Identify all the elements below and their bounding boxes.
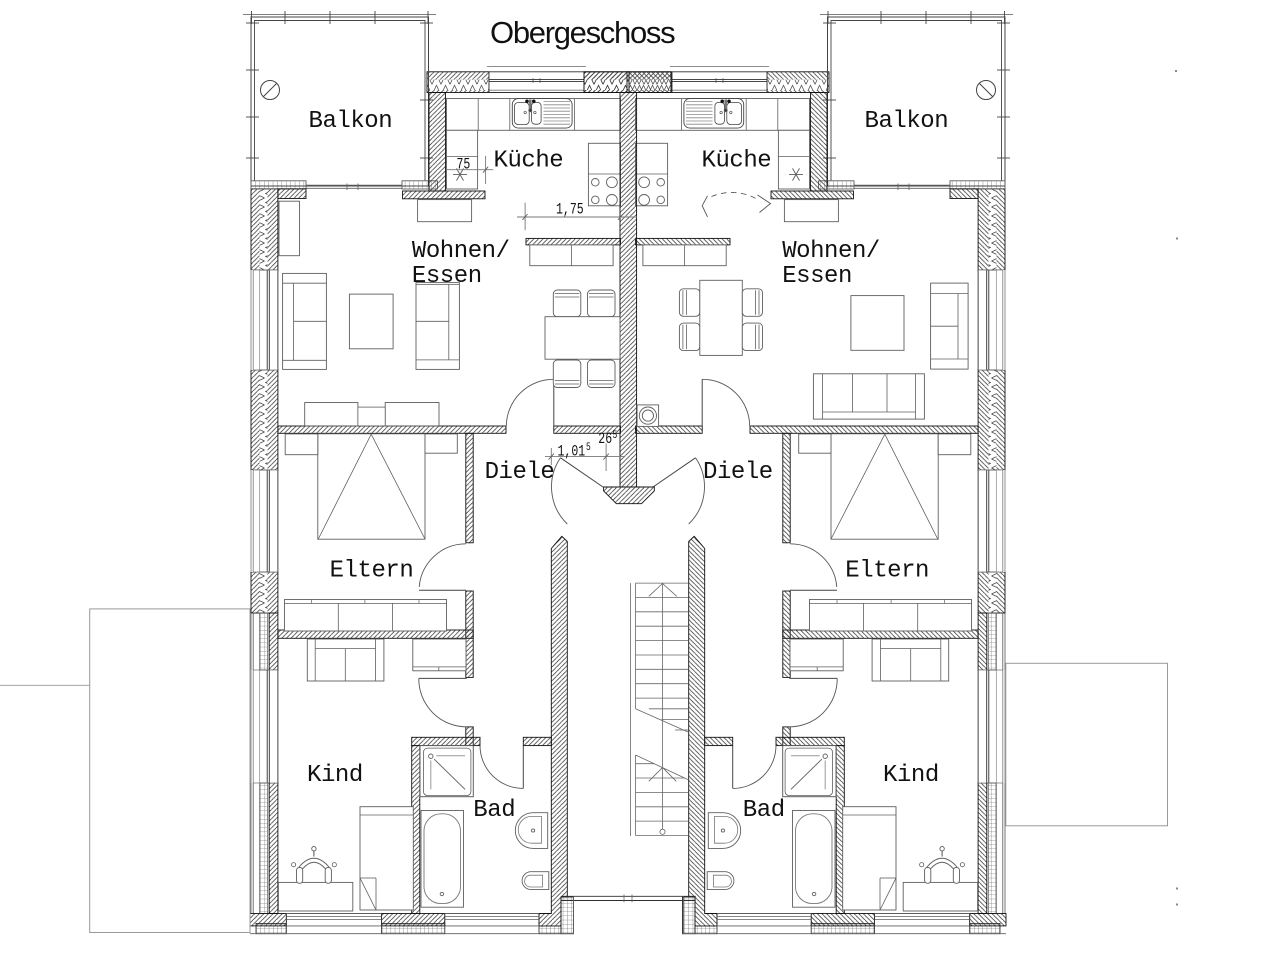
svg-text:5: 5 bbox=[586, 441, 591, 454]
svg-text:Kind: Kind bbox=[307, 762, 363, 789]
svg-text:Essen: Essen bbox=[782, 263, 852, 290]
svg-text:Küche: Küche bbox=[494, 148, 564, 175]
svg-text:1,75: 1,75 bbox=[556, 201, 584, 219]
svg-text:Essen: Essen bbox=[412, 263, 482, 290]
svg-text:Diele: Diele bbox=[485, 459, 555, 486]
svg-text:Eltern: Eltern bbox=[330, 558, 414, 585]
svg-text:Balkon: Balkon bbox=[309, 108, 393, 135]
svg-text:75: 75 bbox=[457, 156, 471, 174]
svg-text:Bad: Bad bbox=[473, 797, 515, 824]
svg-text:Küche: Küche bbox=[702, 148, 772, 175]
svg-text:Obergeschoss: Obergeschoss bbox=[490, 15, 675, 50]
svg-text:Balkon: Balkon bbox=[865, 108, 949, 135]
svg-text:5: 5 bbox=[613, 429, 618, 442]
svg-text:1,01: 1,01 bbox=[558, 443, 586, 461]
svg-text:Diele: Diele bbox=[703, 459, 773, 486]
svg-text:Kind: Kind bbox=[883, 762, 939, 789]
svg-text:26: 26 bbox=[598, 430, 612, 448]
svg-text:Wohnen/: Wohnen/ bbox=[412, 238, 510, 265]
svg-text:Bad: Bad bbox=[743, 797, 785, 824]
svg-text:Wohnen/: Wohnen/ bbox=[782, 238, 880, 265]
svg-text:Eltern: Eltern bbox=[845, 558, 929, 585]
